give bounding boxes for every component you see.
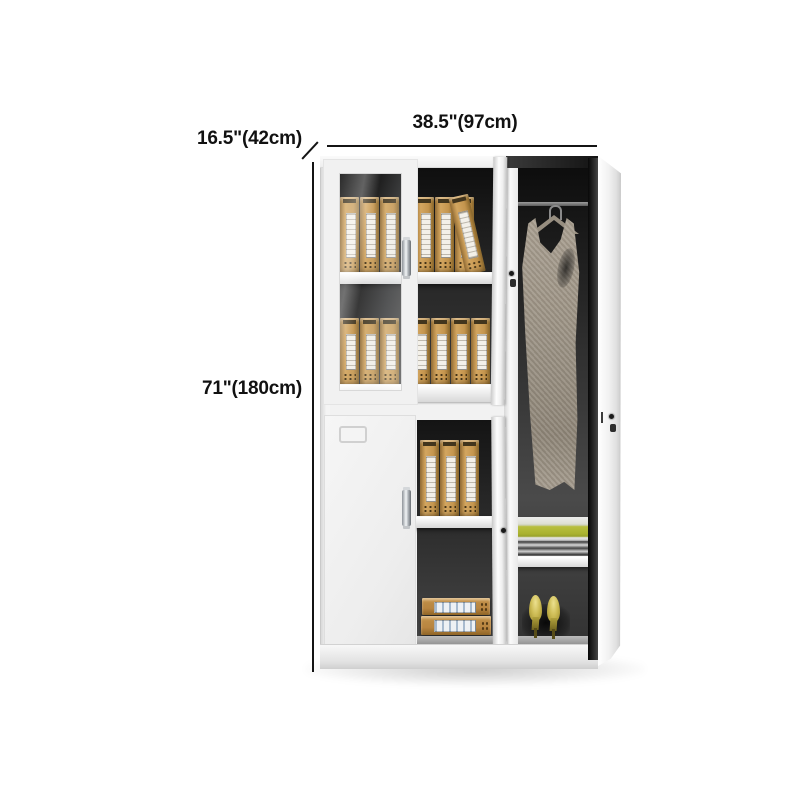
lock-icon bbox=[501, 528, 509, 542]
binder-label-strip bbox=[457, 334, 467, 370]
key-icon bbox=[510, 279, 516, 287]
keyhole-icon bbox=[509, 271, 514, 276]
lock-with-key-icon bbox=[509, 271, 517, 291]
binder-top-band bbox=[418, 199, 431, 203]
upper-door-handle bbox=[402, 240, 411, 276]
file-binder bbox=[440, 440, 459, 517]
high-heel-shoe-right bbox=[546, 596, 561, 640]
binder-rivets bbox=[474, 373, 487, 381]
box-label-strip bbox=[434, 602, 475, 613]
binder-top-band bbox=[443, 442, 456, 446]
cabinet-top-open-area bbox=[506, 156, 598, 168]
binder-top-band bbox=[463, 442, 476, 446]
box-rivets bbox=[481, 621, 488, 631]
binder-top-band bbox=[434, 320, 447, 324]
shoe-heel bbox=[552, 629, 555, 639]
height-dimension-line bbox=[312, 162, 314, 672]
binder-row-lower-shelf bbox=[420, 440, 479, 517]
file-binder bbox=[415, 197, 434, 273]
key-icon bbox=[610, 424, 616, 432]
wardrobe-door-open bbox=[598, 156, 621, 666]
folded-clothes-stack bbox=[516, 517, 590, 557]
binder-label-strip bbox=[437, 334, 447, 370]
binder-label-strip bbox=[417, 334, 427, 370]
solid-door-closed bbox=[324, 415, 416, 645]
binder-rivets bbox=[454, 373, 467, 381]
binder-label-strip bbox=[477, 334, 487, 370]
binder-rivets bbox=[423, 505, 436, 513]
binder-top-band bbox=[452, 196, 467, 203]
file-binder bbox=[460, 440, 479, 517]
file-binder bbox=[451, 318, 470, 385]
binder-label-strip bbox=[441, 213, 451, 258]
cabinet-base-plinth bbox=[320, 644, 598, 669]
file-binder bbox=[420, 440, 439, 517]
binder-rivets bbox=[443, 505, 456, 513]
binder-label-strip bbox=[458, 210, 479, 259]
binder-rivets bbox=[434, 373, 447, 381]
width-dimension-line bbox=[327, 145, 597, 147]
door-label-holder bbox=[339, 426, 367, 443]
wardrobe-shelf bbox=[514, 556, 592, 567]
binder-top-band bbox=[454, 320, 467, 324]
lower-door-handle bbox=[402, 490, 411, 526]
door-lock-with-key-icon bbox=[606, 414, 618, 438]
binder-rivets bbox=[438, 261, 451, 269]
height-dimension-label: 71"(180cm) bbox=[202, 378, 312, 400]
binder-label-strip bbox=[426, 456, 436, 502]
depth-dimension-tick bbox=[301, 141, 318, 159]
high-heel-shoe-left bbox=[528, 595, 543, 639]
width-dimension-label: 38.5"(97cm) bbox=[380, 112, 550, 134]
box-rivets bbox=[480, 602, 487, 611]
glass-door-open-edge bbox=[491, 157, 508, 405]
product-dimension-image: 38.5"(97cm) 16.5"(42cm) 71"(180cm) bbox=[0, 0, 800, 800]
file-binder bbox=[431, 318, 450, 385]
keyhole-icon bbox=[501, 528, 506, 533]
keyhole-icon bbox=[609, 414, 614, 419]
binder-label-strip bbox=[421, 213, 431, 258]
binder-rivets bbox=[466, 260, 481, 271]
binder-label-strip bbox=[466, 456, 476, 502]
binder-top-band bbox=[474, 320, 487, 324]
binder-rivets bbox=[418, 261, 431, 269]
binder-tilted-upper-shelf-1 bbox=[466, 194, 486, 273]
document-box bbox=[422, 598, 490, 615]
door-latch bbox=[601, 412, 603, 423]
box-label-strip bbox=[434, 620, 477, 632]
binder-label-strip bbox=[446, 456, 456, 502]
document-box bbox=[421, 616, 491, 635]
shoe-heel bbox=[534, 628, 537, 638]
binder-row-upper-shelf-2-open bbox=[411, 318, 490, 385]
binder-rivets bbox=[463, 505, 476, 513]
file-binder bbox=[471, 318, 490, 385]
binder-top-band bbox=[423, 442, 436, 446]
depth-dimension-label: 16.5"(42cm) bbox=[178, 128, 302, 150]
glass-door-closed bbox=[324, 160, 417, 404]
